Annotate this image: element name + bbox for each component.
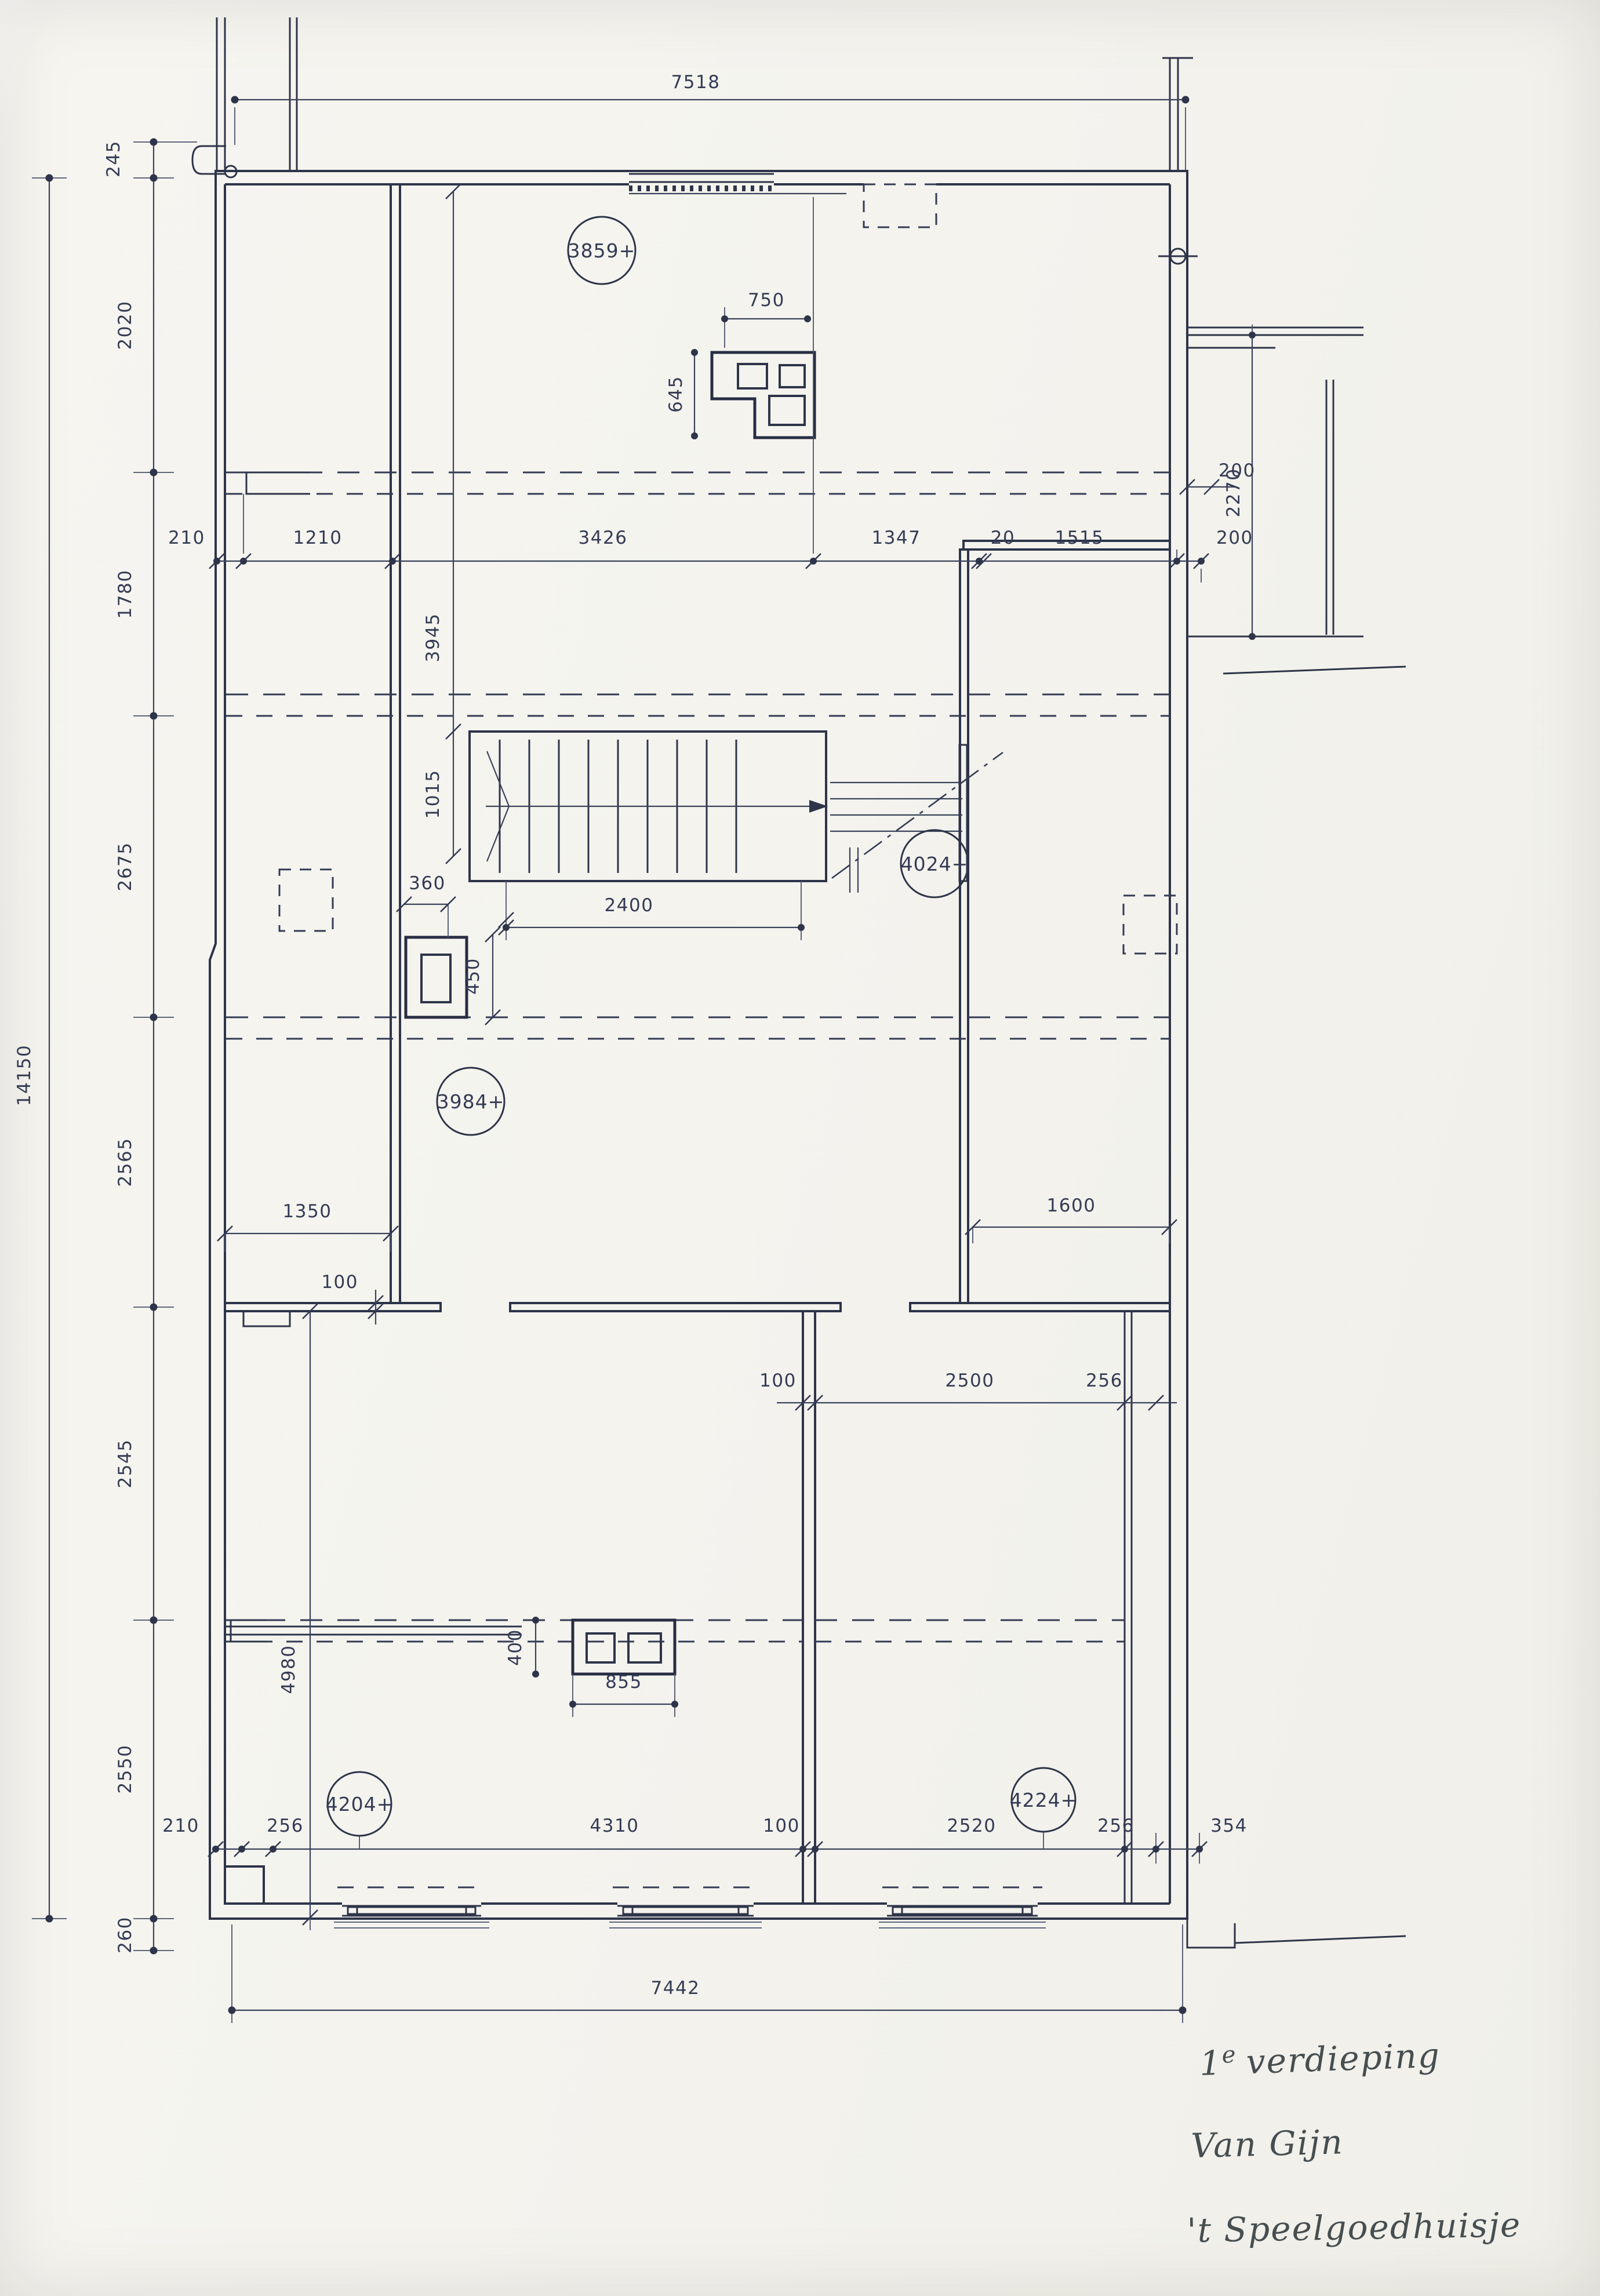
dim-left-2545: 2545 <box>115 1439 136 1489</box>
title-line1-sup: e <box>1221 2042 1237 2069</box>
chimney-top-flue1 <box>738 364 767 388</box>
beam-row4-solid <box>226 1627 522 1635</box>
dim-r1-3426: 3426 <box>579 527 628 548</box>
dim-b-256a: 256 <box>267 1815 304 1836</box>
dim-4980: 4980 <box>278 1645 299 1694</box>
top-window-frame <box>629 174 774 182</box>
dim-2400: 2400 <box>605 895 654 916</box>
stair-jamb-marks <box>850 847 858 893</box>
level-3859-label: 3859+ <box>568 239 636 262</box>
level-markers: 3859+ 4024+ 3984+ 4204+ 4224+ <box>326 217 1078 1836</box>
partition-left <box>391 184 400 1303</box>
dim-b-210: 210 <box>162 1815 199 1836</box>
dim-left-2675: 2675 <box>115 842 136 892</box>
dim-645: 645 <box>666 376 686 413</box>
chimney-bottom <box>573 1620 675 1674</box>
dashed-hatch-left <box>279 869 333 931</box>
level-4224-label: 4224+ <box>1010 1789 1078 1811</box>
dim-low-100: 100 <box>759 1370 797 1391</box>
mid-wall-duct <box>243 1311 290 1326</box>
dim-r1-1210: 1210 <box>293 527 343 548</box>
dim-r1-200: 200 <box>1216 527 1253 548</box>
level-marker-4224: 4224+ <box>1010 1768 1078 1832</box>
dim-left-245: 245 <box>103 140 124 177</box>
chimney-top-flue3 <box>769 396 805 425</box>
dim-ticks <box>208 184 1219 1925</box>
dim-left-1780: 1780 <box>115 570 136 619</box>
title-block: 1everdieping Van Gijn 't Speelgoedhuisje <box>1187 2035 1522 2250</box>
dim-855: 855 <box>605 1672 642 1693</box>
mid-wall-seg3 <box>910 1303 1170 1311</box>
title-line2: Van Gijn <box>1191 2122 1344 2166</box>
level-4024-label: 4024+ <box>901 853 969 875</box>
duct-middle-outline <box>406 937 467 1017</box>
dim-low-2500: 2500 <box>946 1370 995 1391</box>
annex-lines <box>1187 328 1406 674</box>
bw1-blocks <box>348 1907 475 1914</box>
chimney-top-flue2 <box>780 365 805 387</box>
dim-750: 750 <box>748 290 785 311</box>
bottom-right-step <box>1187 1919 1406 1948</box>
stair-lower-flight-treads <box>830 783 962 831</box>
bw2-sill <box>623 1907 748 1914</box>
bw3-ledge <box>879 1922 1046 1928</box>
dim-400: 400 <box>505 1629 526 1666</box>
top-window <box>629 174 936 227</box>
chimney-bottom-outline <box>573 1620 675 1674</box>
chimney-bottom-flue1 <box>587 1633 614 1662</box>
dim-left-2020: 2020 <box>115 301 136 350</box>
bottom-window-2 <box>609 1887 762 1928</box>
dim-b-256b: 256 <box>1097 1815 1134 1836</box>
title-line1: 1everdieping <box>1199 2035 1441 2083</box>
exterior-walls <box>192 146 1406 1948</box>
beam-row4-pocket <box>231 1620 267 1642</box>
dim-1015: 1015 <box>423 770 443 819</box>
title-line1-rest: verdieping <box>1246 2036 1441 2082</box>
dim-b-4310: 4310 <box>590 1815 639 1836</box>
mid-wall-seg2 <box>510 1303 841 1311</box>
paper-sheet: 3859+ 4024+ 3984+ 4204+ 4224+ 7518 14150… <box>0 0 1600 2296</box>
mid-wall-seg1 <box>225 1303 441 1311</box>
dim-overall-height: 14150 <box>14 1045 35 1106</box>
chimney-top <box>712 352 814 438</box>
dim-top-total: 7518 <box>671 72 721 93</box>
dim-1600: 1600 <box>1047 1195 1096 1216</box>
level-marker-3984: 3984+ <box>437 1068 505 1135</box>
dim-100-mid: 100 <box>321 1272 358 1293</box>
beam-row1-pocket <box>246 472 310 494</box>
bw3-blocks <box>893 1907 1032 1914</box>
dim-low-256: 256 <box>1086 1370 1123 1391</box>
bw2-ledge <box>609 1922 762 1928</box>
top-left-hook <box>192 146 226 174</box>
dim-dots <box>46 96 1256 2014</box>
dim-r1-210: 210 <box>168 527 205 548</box>
title-line1-base: 1 <box>1199 2043 1223 2083</box>
annex-walls <box>1187 328 1406 674</box>
dim-r1-20: 20 <box>991 527 1015 548</box>
bottom-window-3 <box>879 1887 1046 1928</box>
dim-r1-1515: 1515 <box>1055 527 1104 548</box>
duct-middle <box>406 937 467 1017</box>
bw2-blocks <box>623 1907 748 1914</box>
interior-walls <box>225 184 1170 1904</box>
bw3-sill <box>893 1907 1032 1914</box>
dim-b-354: 354 <box>1210 1815 1248 1836</box>
bw1-sill <box>348 1907 475 1914</box>
level-4204-label: 4204+ <box>326 1793 394 1815</box>
partition-right-upper <box>960 550 968 1303</box>
dimension-lines <box>49 100 1252 2010</box>
title-line3: 't Speelgoedhuisje <box>1187 2205 1522 2250</box>
dim-1350: 1350 <box>283 1201 332 1222</box>
duct-middle-flue <box>421 955 450 1002</box>
floorplan-drawing: 3859+ 4024+ 3984+ 4204+ 4224+ 7518 14150… <box>0 0 1600 2296</box>
dim-left-260: 260 <box>115 1916 136 1953</box>
level-3984-label: 3984+ <box>437 1090 505 1113</box>
dim-left-2565: 2565 <box>115 1138 136 1187</box>
bottom-window-1 <box>334 1887 489 1928</box>
level-marker-4204: 4204+ <box>326 1772 394 1836</box>
dim-450: 450 <box>463 958 483 995</box>
top-wall-dashed-opening <box>864 184 936 227</box>
dim-3945: 3945 <box>423 613 443 663</box>
dim-360: 360 <box>409 873 446 894</box>
dim-r1-1347: 1347 <box>872 527 921 548</box>
beam-lines <box>226 472 1170 1642</box>
dim-left-2550: 2550 <box>115 1745 136 1794</box>
dim-b-2520: 2520 <box>947 1815 997 1836</box>
dim-b-100: 100 <box>763 1815 800 1836</box>
level-marker-4024: 4024+ <box>901 830 969 897</box>
chimney-bottom-flue2 <box>628 1633 661 1662</box>
party-wall-lines <box>217 17 1193 170</box>
bw1-ledge <box>334 1922 489 1928</box>
bottom-left-pier <box>225 1866 264 1904</box>
outer-wall-line <box>210 171 1187 1919</box>
dim-bottom-total: 7442 <box>651 1978 700 1999</box>
dimension-labels: 7518 14150 245 2020 1780 2675 2565 2545 … <box>14 72 1256 1999</box>
dim-200-annex: 200 <box>1219 460 1256 481</box>
level-marker-3859: 3859+ <box>568 217 636 284</box>
